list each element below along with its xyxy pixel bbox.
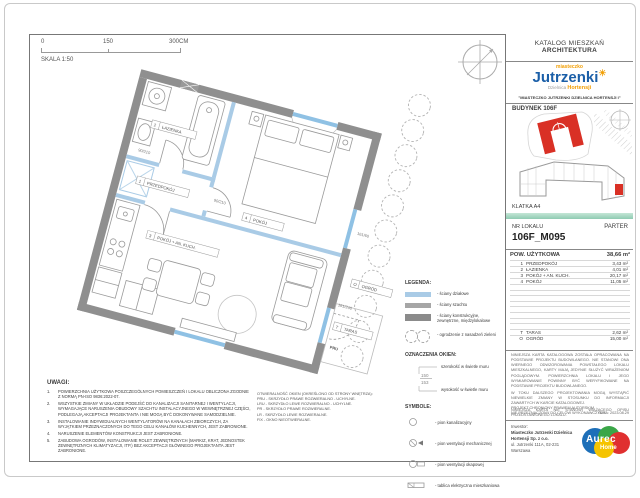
greenery-fence-swatch <box>405 330 431 342</box>
building-floorplate <box>520 162 624 200</box>
aurec-home-logo: Aurec Home <box>582 426 630 458</box>
legend-item-szacht: - ściany szachtu <box>405 302 503 308</box>
note-item: 1.POWIERZCHNIA UŻYTKOWA POSZCZEGÓLNYCH P… <box>47 389 251 400</box>
dim-window: 161/60 <box>357 231 371 239</box>
shaft <box>180 80 199 92</box>
window-height-label: wysokość w świetle muru <box>441 387 488 392</box>
room-label-ogrod: O OGRÓD <box>350 279 393 298</box>
legend: LEGENDA: - ściany działowe - ściany szac… <box>405 280 503 498</box>
brand-sub2: Hortensji <box>567 85 591 91</box>
note-item: 4.NARUSZENIE ELEMENTÓW KONSTRUKCJI JEST … <box>47 431 251 436</box>
area-header-label: POW. UŻYTKOWA <box>510 252 607 258</box>
table-row: 4POKÓJ11,05 m² <box>510 278 630 284</box>
scale-tick-0: 0 <box>41 39 44 45</box>
legend-item-konstrukcyjne: - ściany konstrukcyjne, zewnętrzne, międ… <box>405 313 503 324</box>
catalog-subtitle: ARCHITEKTURA <box>506 47 633 54</box>
area-table: POW. UŻYTKOWA 38,66 m² 1PRZEDPOKÓJ3,43 m… <box>510 252 630 341</box>
window-openability: OTWIERALNOŚĆ OKIEN (OKREŚLONO OD STRONY … <box>257 392 385 423</box>
investor-address: ul. Jutrzenki 111A, 02-231 Warszawa <box>511 442 579 454</box>
notes-title: UWAGI: <box>47 380 251 386</box>
note-item: 2.WSZYSTKIE ZMIANY W UKŁADZIE PODEJŚĆ DO… <box>47 401 251 417</box>
shaft-wall-swatch <box>405 303 431 308</box>
brand-sub1: Dzielnica <box>548 85 566 90</box>
legend-item-ogrodzenie: - ogrodzenie z nasadzeń zieleni <box>405 329 503 342</box>
structural-wall-swatch <box>405 314 431 321</box>
unit-code: 106F_M095 <box>512 232 565 243</box>
aurec-name: Aurec <box>586 434 616 445</box>
brand-name: Jutrzenki <box>533 69 599 86</box>
building-highlight <box>537 114 584 155</box>
scale-tick-150: 150 <box>103 39 113 45</box>
dim-bath-door: 90/210 <box>138 147 152 155</box>
notes-section: UWAGI: 1.POWIERZCHNIA UŻYTKOWA POSZCZEGÓ… <box>47 380 251 455</box>
brand-logo: miasteczko Jutrzenki☀ Dzielnica Hortensj… <box>506 64 633 100</box>
brand-quote: "MIASTECZKO JUTRZENKI DZIELNICA HORTENSJ… <box>506 95 633 100</box>
sofa <box>271 250 329 332</box>
legend-title: LEGENDA: <box>405 280 503 286</box>
note-item: 5.ZABUDOWA OGRODÓW, INSTALOWANIE ROLET Z… <box>47 438 251 454</box>
unit-highlight <box>615 184 623 195</box>
window-width-label: szerokość w świetle muru <box>441 364 489 369</box>
symbol-wentylacja-okap: - pion wentylacji okapowej <box>405 456 503 474</box>
investor-name: Miasteczko Jutrzenki Dzielnica Hortensji… <box>511 430 579 442</box>
symbol-tablica: - tablica elektryczna mieszkaniowa <box>405 477 503 495</box>
aurec-sub: Home <box>600 445 617 451</box>
date-label: DATA: 2023.08.29 <box>598 411 629 416</box>
partition-wall-swatch <box>405 292 431 297</box>
tv-bench <box>180 318 236 341</box>
door-type-label: PRU <box>329 345 339 352</box>
catalog-sheet: 0 150 300CM SKALA 1:50 <box>4 3 636 477</box>
room-label-lazienka: 2 ŁAZIENKA <box>151 120 198 140</box>
table-row: 1PRZEDPOKÓJ3,43 m² <box>510 260 630 266</box>
unit-nr-label: NR LOKALU <box>512 224 543 230</box>
site-plan <box>508 106 632 200</box>
table-row-taras: TTARAS2,62 m² <box>510 329 630 335</box>
bedroom-furniture <box>228 111 352 227</box>
window-marking-diagram: 150 153 szerokość w świetle muru wysokoś… <box>405 362 503 396</box>
staircase-label: KLATKA A4 <box>512 204 540 210</box>
investor-block: Inwestor: Miasteczko Jutrzenki Dzielnica… <box>511 424 579 453</box>
area-header-value: 38,66 m² <box>607 252 630 258</box>
unit-floor: PARTER <box>604 224 628 230</box>
sun-icon: ☀ <box>598 68 606 78</box>
info-panel: KATALOG MIESZKAŃ ARCHITEKTURA miasteczko… <box>505 34 633 462</box>
note-item: 3.INSTALOWANIE INDYWIDUALNYCH WENTYLATOR… <box>47 419 251 430</box>
svg-text:153: 153 <box>421 380 429 385</box>
accent-bar <box>506 213 633 219</box>
catalog-title: KATALOG MIESZKAŃ <box>506 34 633 47</box>
table-row-ogrod: OOGRÓD15,00 m² <box>510 335 630 341</box>
dim-terrace-door: 161/240 <box>337 302 353 311</box>
symbols-title: SYMBOLE: <box>405 404 503 410</box>
scale-tick-300: 300CM <box>169 39 188 45</box>
svg-text:150: 150 <box>421 373 429 378</box>
copyright: PROJEKT CHRONIONY PRAWEM AUTORSKIM NIE P… <box>511 406 629 416</box>
table-row: 3POKÓJ + AN. KUCH.20,17 m² <box>510 272 630 278</box>
symbol-wentylacja-mech: - pion wentylacji mechanicznej <box>405 435 503 453</box>
dim-bedroom-door: 90/210 <box>213 198 227 206</box>
legend-item-dzialowe: - ściany działowe <box>405 291 503 297</box>
symbol-kanalizacja: - pion kanalizacyjny <box>405 414 503 432</box>
window-markings-title: OZNACZENIA OKIEN: <box>405 352 503 358</box>
table-row: 2ŁAZIENKA4,01 m² <box>510 266 630 272</box>
room-label-pokoj-kuchnia: 3 POKÓJ + AN. KUCH. <box>146 230 220 257</box>
